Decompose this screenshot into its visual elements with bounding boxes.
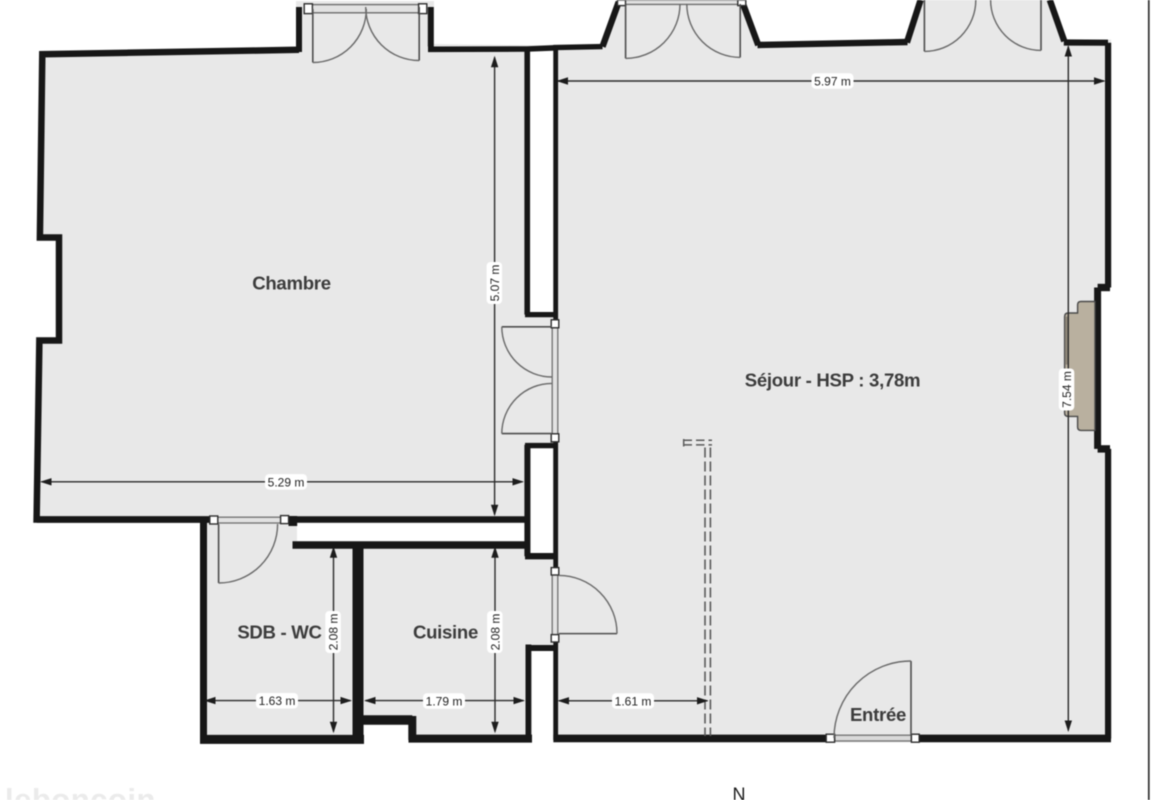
svg-text:leboncoin: leboncoin — [5, 782, 156, 800]
svg-text:Chambre: Chambre — [252, 273, 331, 294]
svg-text:5.97 m: 5.97 m — [814, 75, 851, 89]
svg-text:5.29 m: 5.29 m — [268, 475, 305, 489]
svg-text:Séjour - HSP : 3,78m: Séjour - HSP : 3,78m — [745, 370, 921, 391]
svg-text:N: N — [733, 785, 746, 800]
svg-text:5.07 m: 5.07 m — [488, 265, 502, 302]
svg-text:1.61 m: 1.61 m — [615, 694, 652, 708]
svg-text:SDB - WC: SDB - WC — [237, 622, 321, 643]
svg-text:2.08 m: 2.08 m — [327, 614, 341, 651]
svg-text:1.79 m: 1.79 m — [426, 694, 463, 708]
svg-text:1.63 m: 1.63 m — [259, 694, 296, 708]
svg-text:2.08 m: 2.08 m — [488, 614, 502, 651]
svg-text:Cuisine: Cuisine — [413, 622, 478, 643]
svg-text:7.54 m: 7.54 m — [1060, 371, 1074, 408]
svg-text:Entrée: Entrée — [850, 704, 906, 725]
